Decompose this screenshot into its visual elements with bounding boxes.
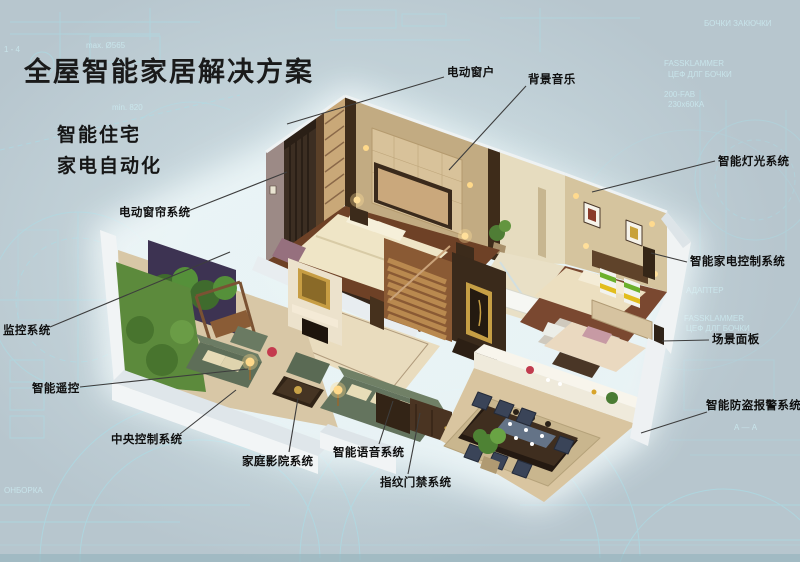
smart-home-poster: 1 - 4 max. Ø565 min. 820 БОЧКИ ЗАКЮЧКИ F… — [0, 0, 800, 562]
wall-lamp — [467, 182, 473, 188]
page-title: 全屋智能家居解决方案 — [24, 50, 314, 89]
wall-lamp — [363, 145, 369, 151]
svg-text:ЦЕФ ДЛГ БОЧКИ: ЦЕФ ДЛГ БОЧКИ — [668, 70, 732, 79]
svg-text:А — А: А — А — [734, 423, 758, 432]
label-background-music: 背景音乐 — [528, 71, 576, 87]
svg-text:FASSKLAMMER: FASSKLAMMER — [664, 59, 724, 68]
wall-pillar — [643, 246, 655, 280]
label-smart-burglar-alarm: 智能防盗报警系统 — [706, 397, 800, 413]
label-smart-voice: 智能语音系统 — [333, 444, 404, 460]
svg-text:БОЧКИ ЗАКЮЧКИ: БОЧКИ ЗАКЮЧКИ — [704, 19, 772, 28]
svg-text:200-FAB: 200-FAB — [664, 90, 695, 99]
flowers — [526, 366, 534, 374]
svg-text:max. Ø565: max. Ø565 — [86, 41, 126, 50]
label-fingerprint-access: 指纹门禁系统 — [380, 474, 451, 490]
label-smart-appliance-control: 智能家电控制系统 — [690, 253, 785, 269]
label-scene-panel: 场景面板 — [712, 331, 760, 347]
subtitle-line-1: 智能住宅 — [57, 120, 141, 147]
label-monitoring-system: 监控系统 — [3, 322, 51, 338]
subtitle-line-2: 家电自动化 — [57, 151, 162, 178]
flowers — [267, 347, 277, 357]
label-smart-remote: 智能遥控 — [32, 380, 80, 396]
label-electric-curtain: 电动窗帘系统 — [119, 204, 190, 220]
svg-text:1 - 4: 1 - 4 — [4, 45, 21, 54]
label-electric-window: 电动窗户 — [447, 64, 495, 80]
label-smart-lighting: 智能灯光系统 — [718, 153, 789, 169]
svg-text:230х60КА: 230х60КА — [668, 100, 705, 109]
svg-text:min. 820: min. 820 — [112, 103, 143, 112]
label-central-control: 中央控制系统 — [111, 431, 182, 447]
wall-lamp — [573, 193, 579, 199]
small-picture-frame — [270, 186, 276, 194]
label-home-theater: 家庭影院系统 — [242, 453, 313, 469]
svg-text:ОНБОРКА: ОНБОРКА — [4, 486, 43, 495]
wall-lamp — [649, 221, 655, 227]
